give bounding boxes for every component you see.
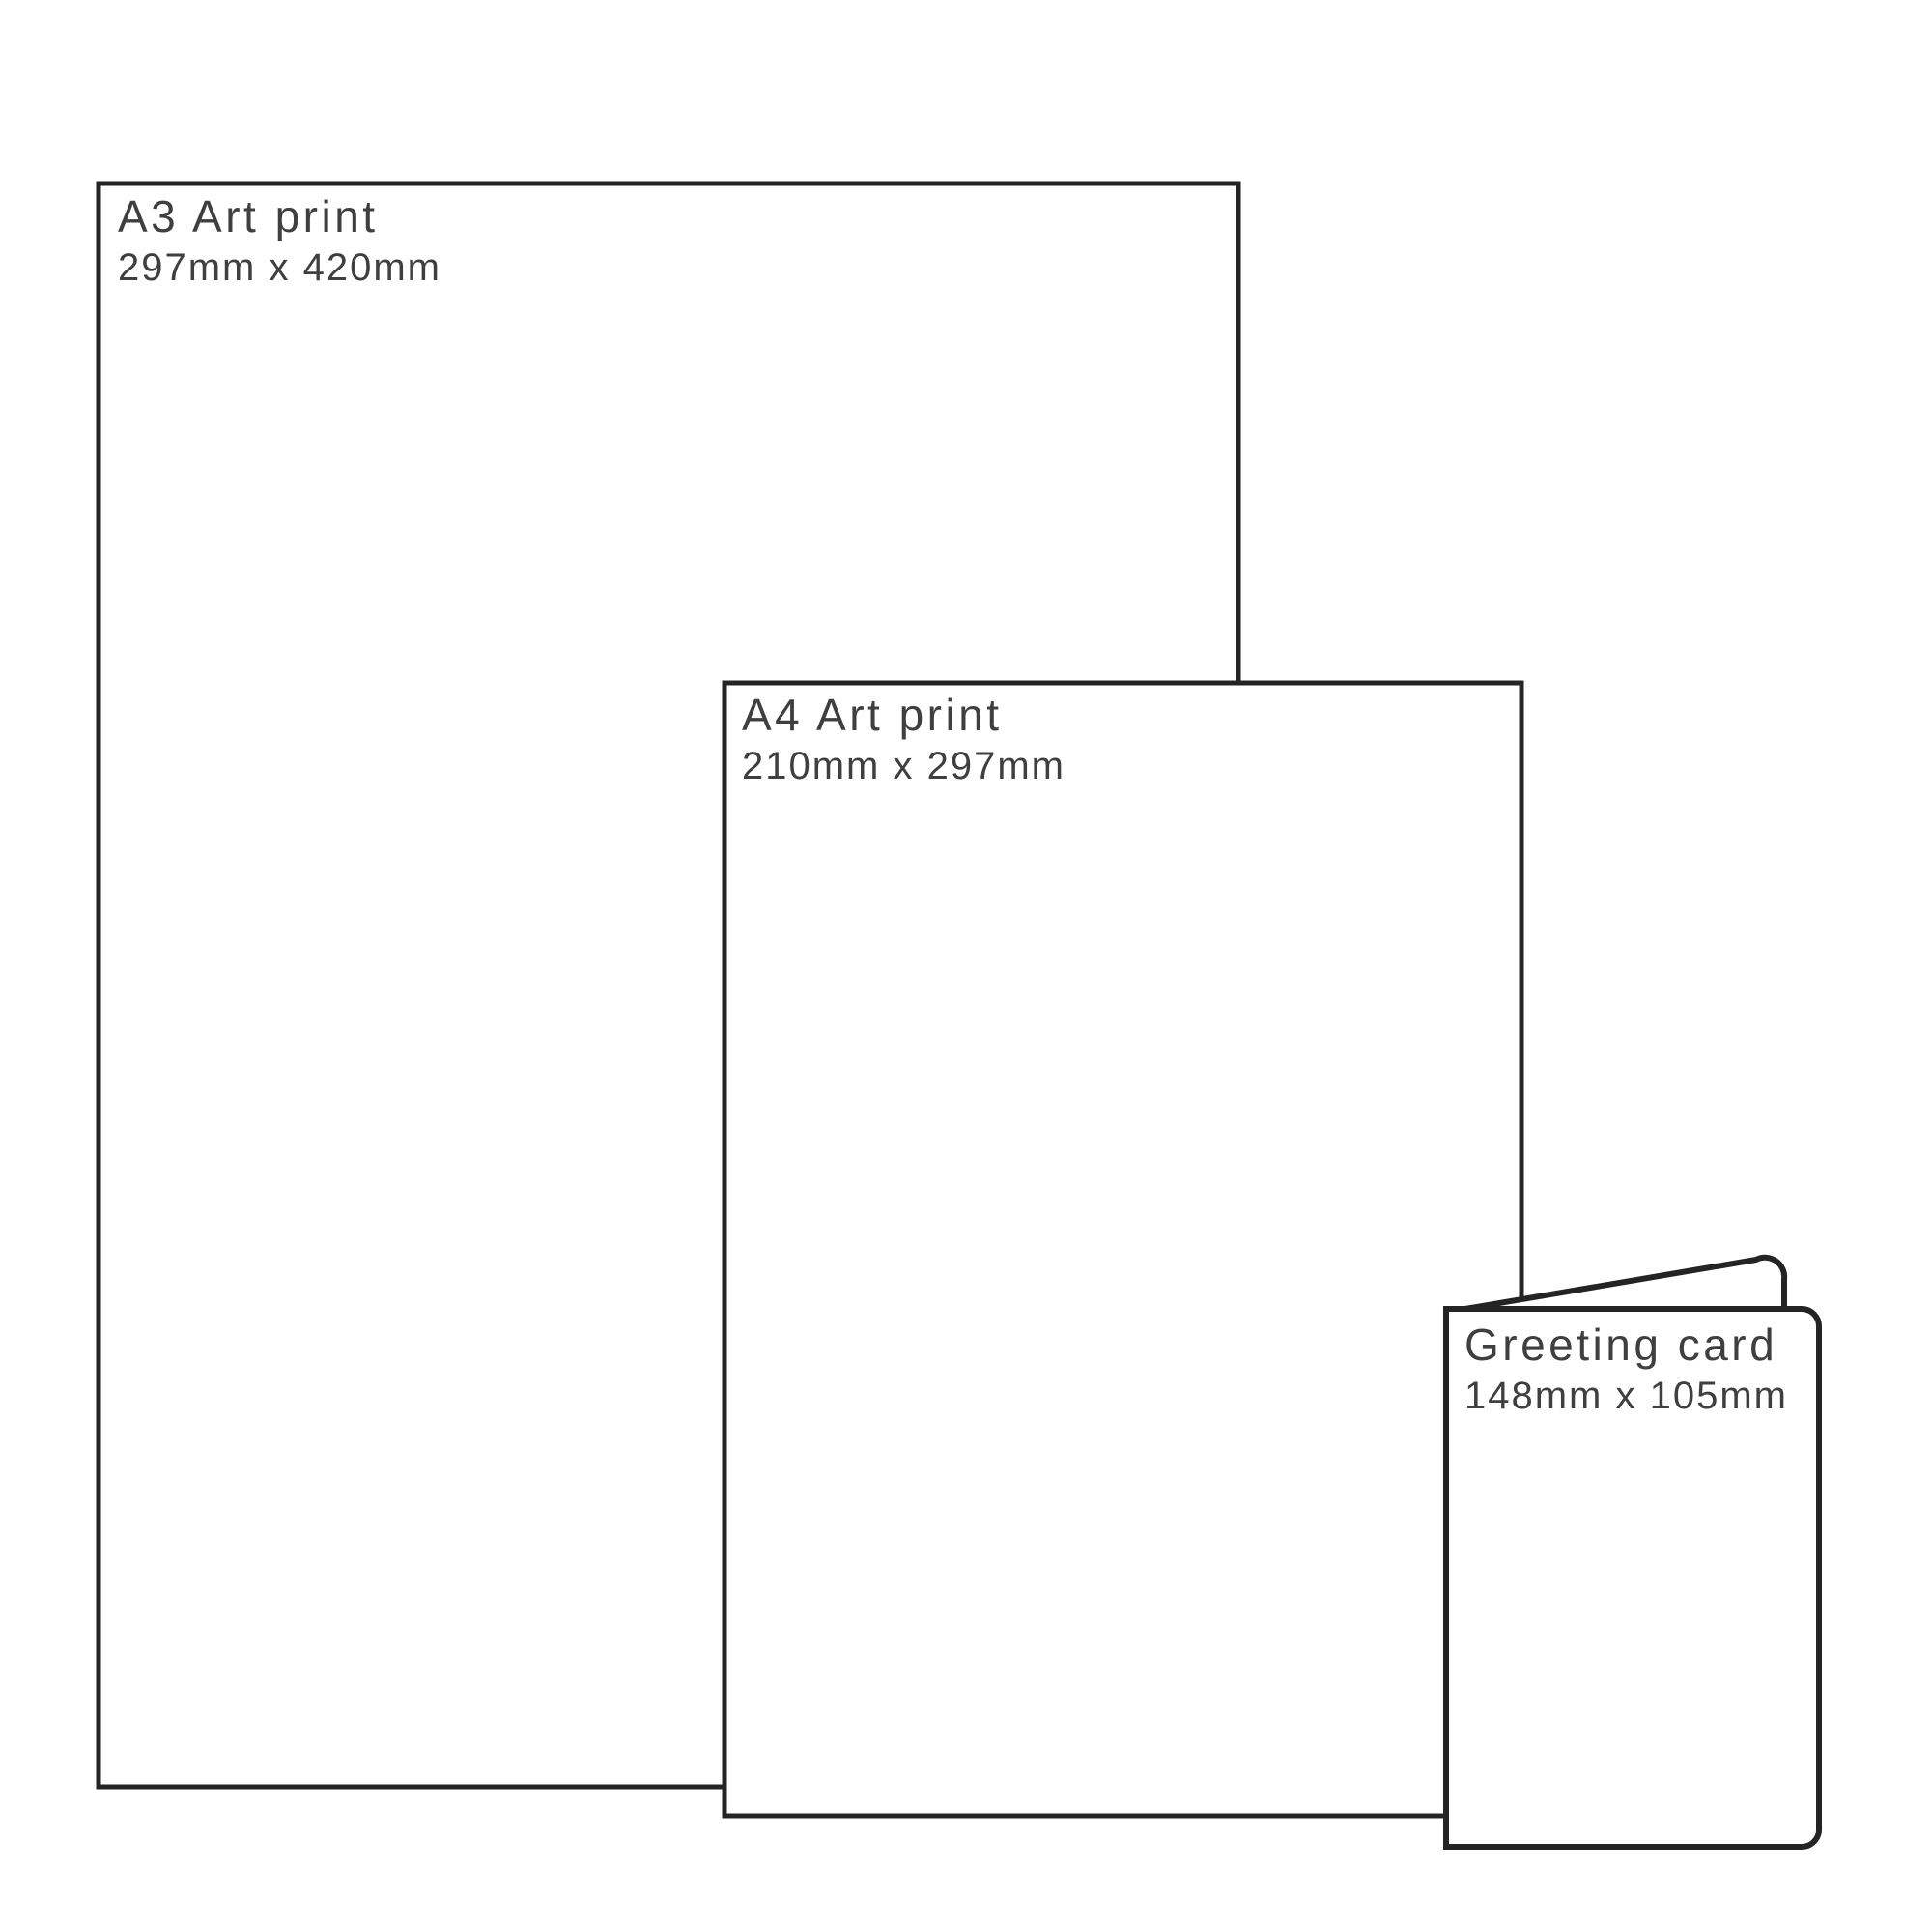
size-comparison-diagram: A3 Art print 297mm x 420mm A4 Art print … — [0, 0, 1932, 1932]
a4-print-outline — [724, 683, 1521, 1816]
greeting-card-front — [1446, 1309, 1819, 1847]
size-comparison-shapes — [0, 0, 1932, 1932]
